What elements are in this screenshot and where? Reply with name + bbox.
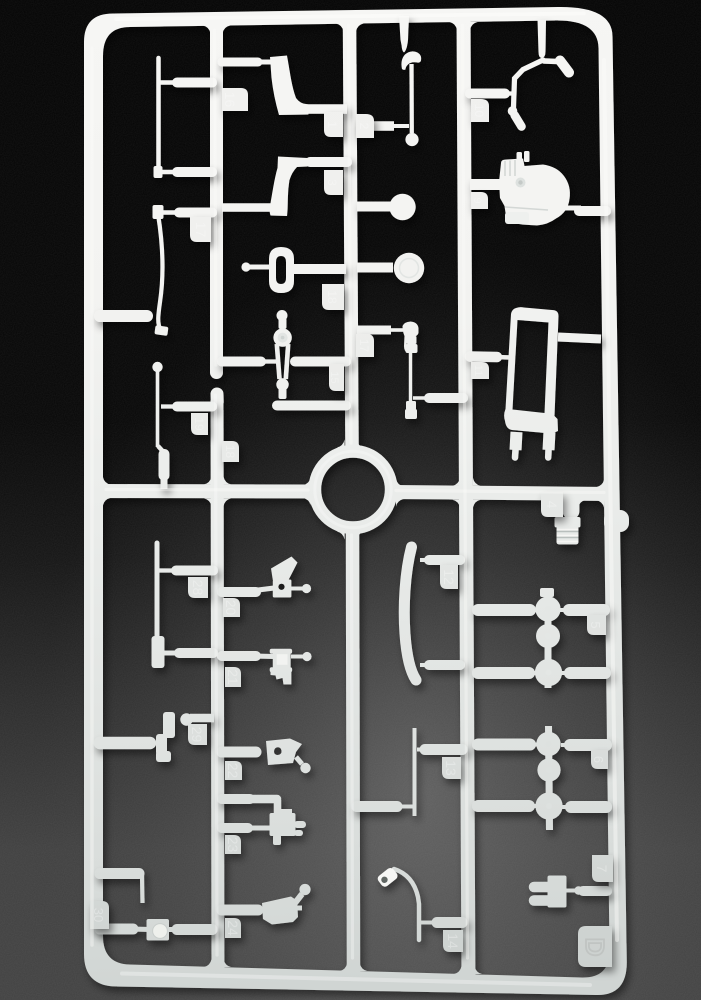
svg-text:4: 4 — [544, 501, 560, 509]
svg-text:12: 12 — [441, 569, 457, 585]
svg-text:18: 18 — [325, 290, 339, 304]
svg-text:14: 14 — [445, 933, 461, 949]
svg-text:21: 21 — [225, 669, 241, 685]
svg-text:11: 11 — [472, 365, 484, 376]
svg-text:28: 28 — [190, 580, 206, 596]
svg-text:1: 1 — [325, 121, 339, 128]
svg-text:18: 18 — [223, 445, 237, 459]
svg-text:9: 9 — [471, 197, 483, 203]
svg-text:2: 2 — [357, 123, 371, 130]
svg-text:22: 22 — [225, 763, 241, 779]
svg-text:5: 5 — [588, 621, 603, 628]
svg-text:16: 16 — [222, 92, 238, 108]
svg-text:10: 10 — [472, 104, 486, 118]
svg-text:20: 20 — [223, 600, 239, 616]
svg-text:7: 7 — [594, 865, 610, 873]
svg-text:17: 17 — [357, 339, 371, 353]
svg-text:13: 13 — [443, 760, 459, 776]
svg-text:17: 17 — [193, 222, 209, 238]
svg-text:24: 24 — [225, 920, 241, 936]
svg-text:3: 3 — [325, 179, 339, 186]
svg-text:19: 19 — [192, 417, 206, 431]
svg-text:D: D — [580, 938, 610, 957]
svg-text:29: 29 — [189, 727, 205, 743]
svg-text:23: 23 — [225, 837, 241, 853]
svg-text:6: 6 — [591, 756, 606, 763]
svg-text:15: 15 — [328, 371, 340, 383]
